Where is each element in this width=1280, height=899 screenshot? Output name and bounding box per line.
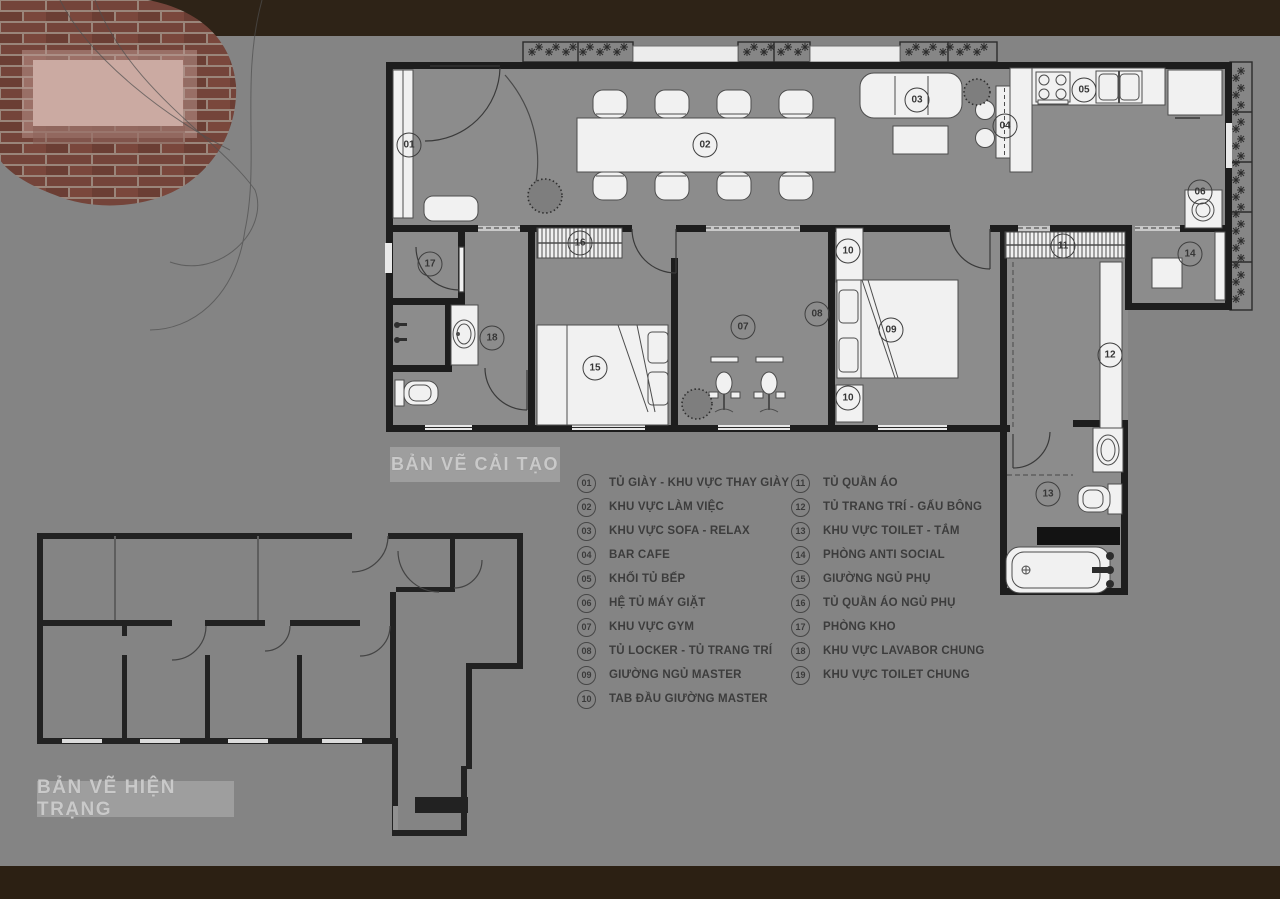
room-marker-13: 13 [1036, 482, 1061, 507]
blurred-logo-box [33, 60, 183, 126]
window-seat [1215, 232, 1225, 300]
legend-number-badge: 01 [577, 474, 596, 493]
legend-label: PHÒNG ANTI SOCIAL [823, 549, 945, 561]
legend-label: KHU VỰC LAVABOR CHUNG [823, 645, 985, 657]
legend-item: 11TỦ QUẦN ÁO [791, 471, 985, 495]
legend-label: TỦ QUẦN ÁO [823, 477, 898, 489]
legend-label: PHÒNG KHO [823, 621, 896, 633]
legend-item: 04BAR CAFE [577, 543, 789, 567]
legend-number-badge: 17 [791, 618, 810, 637]
legend-label: KHỐI TỦ BẾP [609, 573, 685, 585]
room-marker-17: 17 [418, 252, 443, 277]
room-marker-12: 12 [1098, 343, 1123, 368]
legend-label: KHU VỰC SOFA - RELAX [609, 525, 750, 537]
light-partitions [115, 536, 258, 620]
legend-number-badge: 05 [577, 570, 596, 589]
room-marker-16: 16 [568, 231, 593, 256]
legend-number-badge: 14 [791, 546, 810, 565]
legend-number-badge: 13 [791, 522, 810, 541]
legend-number-badge: 11 [791, 474, 810, 493]
legend-number-badge: 18 [791, 642, 810, 661]
legend-number-badge: 06 [577, 594, 596, 613]
bar-stool [976, 129, 995, 148]
legend-item: 12TỦ TRANG TRÍ - GẤU BÔNG [791, 495, 985, 519]
legend-item: 16TỦ QUẦN ÁO NGỦ PHỤ [791, 591, 985, 615]
legend-number-badge: 08 [577, 642, 596, 661]
room-marker-01: 01 [397, 133, 422, 158]
room-marker-06: 06 [1188, 180, 1213, 205]
room-marker-11: 11 [1051, 234, 1076, 259]
poster-graphics [0, 0, 1280, 899]
room-marker-04: 04 [993, 114, 1018, 139]
legend-label: KHU VỰC TOILET CHUNG [823, 669, 970, 681]
room-marker-15: 15 [583, 356, 608, 381]
legend-label: HỆ TỦ MÁY GIẶT [609, 597, 706, 609]
legend-item: 13KHU VỰC TOILET - TẮM [791, 519, 985, 543]
room-marker-07: 07 [731, 315, 756, 340]
lavabo-counter [451, 305, 478, 365]
room-marker-09: 09 [879, 318, 904, 343]
legend-item: 09GIƯỜNG NGỦ MASTER [577, 663, 789, 687]
legend-column: 11TỦ QUẦN ÁO12TỦ TRANG TRÍ - GẤU BÔNG13K… [791, 471, 985, 687]
legend-item: 15GIƯỜNG NGỦ PHỤ [791, 567, 985, 591]
room-marker-10: 10 [836, 386, 861, 411]
entry-bench [424, 196, 478, 221]
legend-number-badge: 09 [577, 666, 596, 685]
legend-number-badge: 10 [577, 690, 596, 709]
fridge [1168, 70, 1222, 115]
room-marker-14: 14 [1178, 242, 1203, 267]
room-marker-05: 05 [1072, 78, 1097, 103]
legend-item: 18KHU VỰC LAVABOR CHUNG [791, 639, 985, 663]
legend-number-badge: 04 [577, 546, 596, 565]
renovation-plan-title: BẢN VẼ CẢI TẠO [390, 447, 560, 482]
legend-label: GIƯỜNG NGỦ PHỤ [823, 573, 931, 585]
legend-number-badge: 12 [791, 498, 810, 517]
legend-label: TAB ĐẦU GIƯỜNG MASTER [609, 693, 768, 705]
room-marker-08: 08 [805, 302, 830, 327]
legend-label: KHU VỰC TOILET - TẮM [823, 525, 960, 537]
legend-label: TỦ LOCKER - TỦ TRANG TRÍ [609, 645, 772, 657]
legend-item: 19KHU VỰC TOILET CHUNG [791, 663, 985, 687]
legend-item: 07KHU VỰC GYM [577, 615, 789, 639]
legend-item: 08TỦ LOCKER - TỦ TRANG TRÍ [577, 639, 789, 663]
legend-label: TỦ QUẦN ÁO NGỦ PHỤ [823, 597, 956, 609]
legend-item: 10TAB ĐẦU GIƯỜNG MASTER [577, 687, 789, 711]
legend-label: BAR CAFE [609, 549, 670, 561]
legend-number-badge: 07 [577, 618, 596, 637]
legend-item: 03KHU VỰC SOFA - RELAX [577, 519, 789, 543]
room-marker-03: 03 [905, 88, 930, 113]
legend-label: KHU VỰC GYM [609, 621, 694, 633]
poster-canvas: 01020304050607080910101112131415161718 B… [0, 0, 1280, 899]
legend-number-badge: 03 [577, 522, 596, 541]
legend-item: 06HỆ TỦ MÁY GIẶT [577, 591, 789, 615]
legend-item: 17PHÒNG KHO [791, 615, 985, 639]
legend-number-badge: 02 [577, 498, 596, 517]
legend-item: 01TỦ GIÀY - KHU VỰC THAY GIÀY [577, 471, 789, 495]
doors [172, 536, 482, 660]
room-marker-18: 18 [480, 326, 505, 351]
legend-number-badge: 15 [791, 570, 810, 589]
legend-number-badge: 19 [791, 666, 810, 685]
room-marker-02: 02 [693, 133, 718, 158]
legend-label: KHU VỰC LÀM VIỆC [609, 501, 724, 513]
legend-item: 14PHÒNG ANTI SOCIAL [791, 543, 985, 567]
legend-label: GIƯỜNG NGỦ MASTER [609, 669, 742, 681]
brick-texture-decoration [0, 0, 262, 330]
legend-number-badge: 16 [791, 594, 810, 613]
toilet-tank [395, 380, 404, 406]
legend-label: TỦ GIÀY - KHU VỰC THAY GIÀY [609, 477, 789, 489]
legend-column: 01TỦ GIÀY - KHU VỰC THAY GIÀY02KHU VỰC L… [577, 471, 789, 711]
legend-item: 05KHỐI TỦ BẾP [577, 567, 789, 591]
small-table [1152, 258, 1182, 288]
coffee-table [893, 126, 948, 154]
bath-shelf [1037, 527, 1120, 545]
legend-label: TỦ TRANG TRÍ - GẤU BÔNG [823, 501, 982, 513]
legend-item: 02KHU VỰC LÀM VIỆC [577, 495, 789, 519]
existing-plan-title: BẢN VẼ HIỆN TRẠNG [37, 781, 234, 817]
room-marker-10: 10 [836, 239, 861, 264]
